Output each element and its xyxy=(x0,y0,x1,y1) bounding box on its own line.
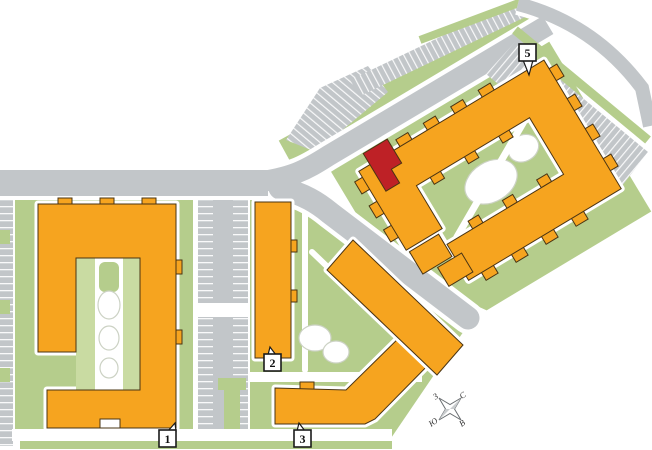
site-plan-svg: 1 2 3 5 З С Ю В xyxy=(0,0,652,450)
label-1-text[interactable]: 1 xyxy=(165,432,171,446)
playground-shape xyxy=(98,291,120,319)
building-2-shape[interactable] xyxy=(255,202,291,358)
building-2[interactable] xyxy=(255,202,297,358)
site-plan-map: 1 2 3 5 З С Ю В xyxy=(0,0,652,450)
label-3-text[interactable]: 3 xyxy=(300,432,306,446)
label-2-text[interactable]: 2 xyxy=(270,356,276,370)
building-1[interactable] xyxy=(38,198,182,428)
south-green-strip xyxy=(20,441,392,449)
label-5-text[interactable]: 5 xyxy=(525,46,531,60)
south-walkway xyxy=(12,429,392,441)
